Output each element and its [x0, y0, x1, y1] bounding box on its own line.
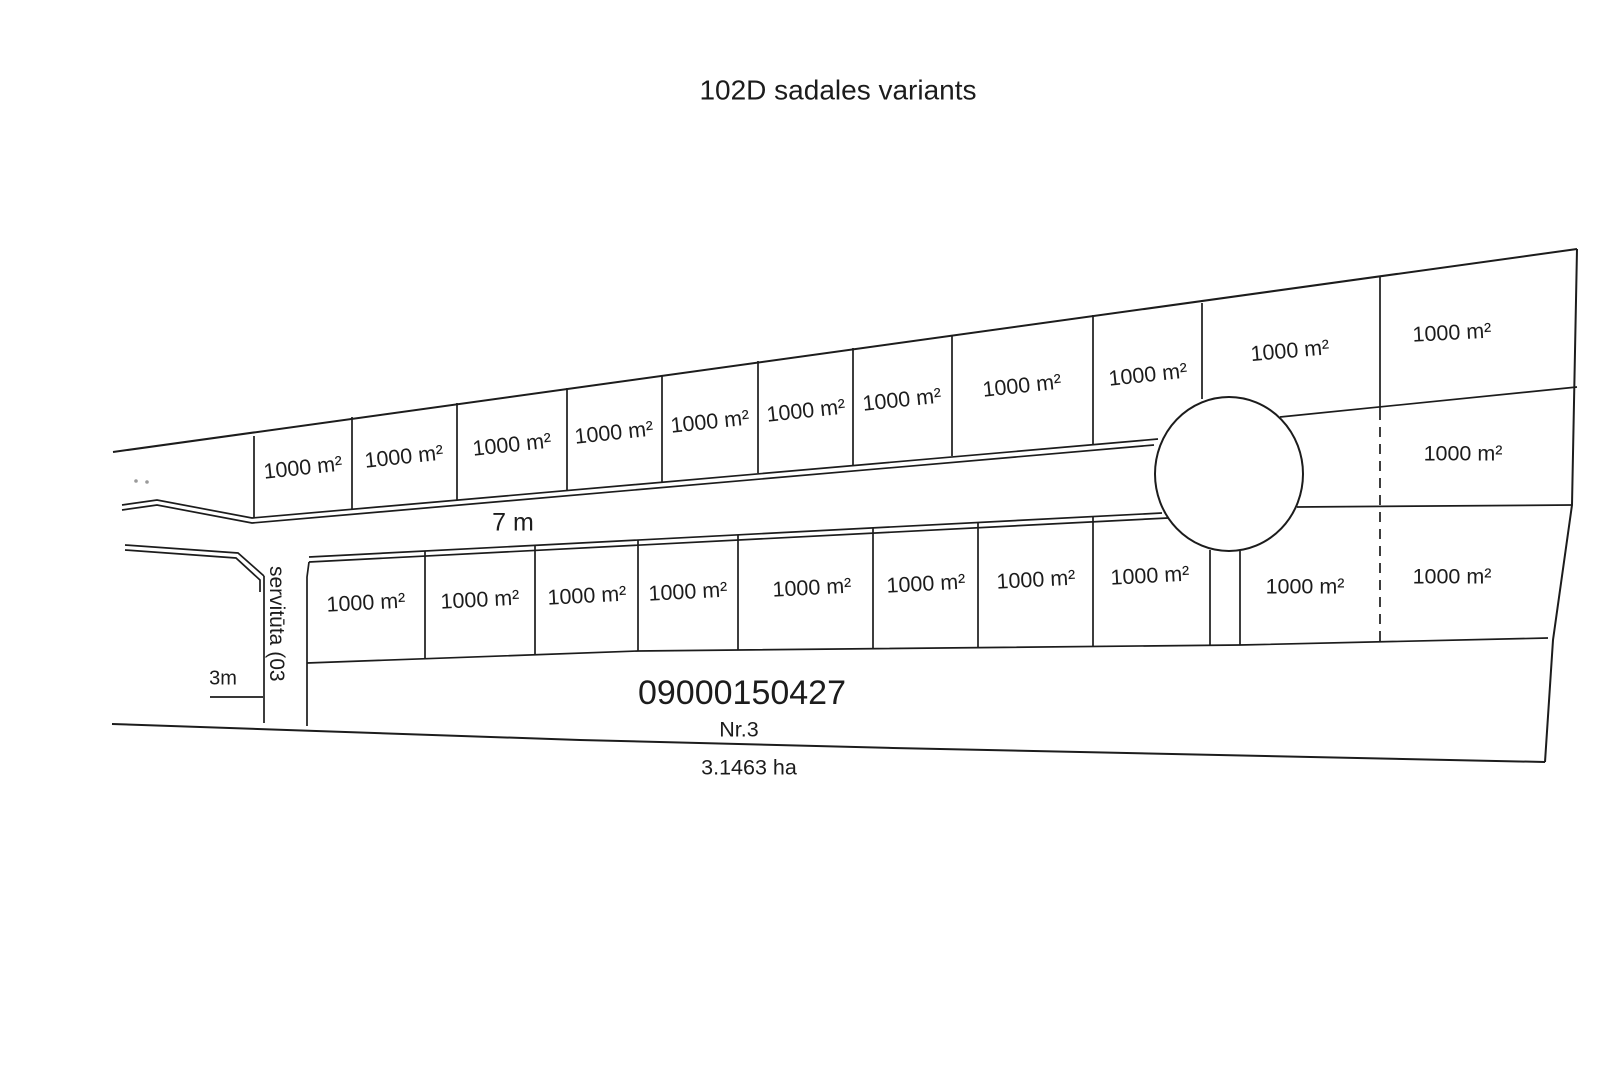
plot-area-label: 1000 m²	[765, 395, 846, 427]
plot-area-label: 1000 m²	[981, 370, 1062, 402]
road-width-label: 7 m	[492, 509, 534, 537]
plot-area-label: 1000 m²	[1266, 575, 1345, 599]
plot-area-label: 1000 m²	[573, 417, 654, 449]
plot-area-label: 1000 m²	[669, 406, 750, 438]
servitude-strip-label: servitūta (03	[265, 566, 288, 682]
plot-area-label: 1000 m²	[363, 441, 444, 473]
plot-area-label: 1000 m²	[648, 578, 728, 606]
drawing-title: 102D sadales variants	[699, 74, 976, 105]
bottom-plots-rear-boundary	[307, 638, 1548, 663]
cadastral-plan-page: 1000 m²1000 m²1000 m²1000 m²1000 m²1000 …	[0, 0, 1600, 1067]
servitude-width-label: 3m	[209, 667, 237, 689]
plot-area-label: 1000 m²	[861, 384, 942, 416]
plot-area-label: 1000 m²	[1413, 565, 1492, 589]
plot-area-label: 1000 m²	[886, 570, 966, 598]
access-corridor	[1210, 550, 1240, 645]
plot-area-label: 1000 m²	[1412, 319, 1492, 347]
plot-area-label: 1000 m²	[1250, 335, 1331, 366]
road-lower-edge-right-line	[309, 513, 1162, 557]
plot-area-label: 1000 m²	[547, 582, 627, 610]
plot-area-label: 1000 m²	[262, 452, 343, 484]
plot-area-label: 1000 m²	[1110, 562, 1190, 590]
road-lower-edge-left-inner-line	[125, 550, 260, 592]
right-plots-row-line-lower	[1297, 505, 1572, 507]
plot-area-label: 1000 m²	[326, 589, 406, 617]
plot-area-label: 1000 m²	[471, 429, 552, 461]
right-plots-row-line-upper	[1280, 387, 1577, 417]
plot-area-label: 1000 m²	[772, 574, 852, 602]
parcel-number-label: Nr.3	[719, 718, 758, 742]
total-area-label: 3.1463 ha	[701, 756, 797, 780]
subdivision-plan-drawing: 1000 m²1000 m²1000 m²1000 m²1000 m²1000 …	[0, 0, 1600, 1067]
plot-area-label: 1000 m²	[996, 566, 1076, 594]
cul-de-sac-circle	[1155, 397, 1303, 551]
road-lower-edge-left-line	[125, 545, 264, 576]
top-boundary-line	[113, 249, 1577, 452]
plot-area-label: 1000 m²	[1424, 442, 1503, 466]
bottom-boundary-line	[112, 724, 1545, 762]
plot-area-label: 1000 m²	[1107, 359, 1188, 391]
cadastral-number-label: 09000150427	[638, 674, 846, 712]
servitude-strip-right-edge	[307, 562, 309, 726]
survey-dots	[134, 479, 149, 484]
plot-area-label: 1000 m²	[440, 586, 520, 614]
